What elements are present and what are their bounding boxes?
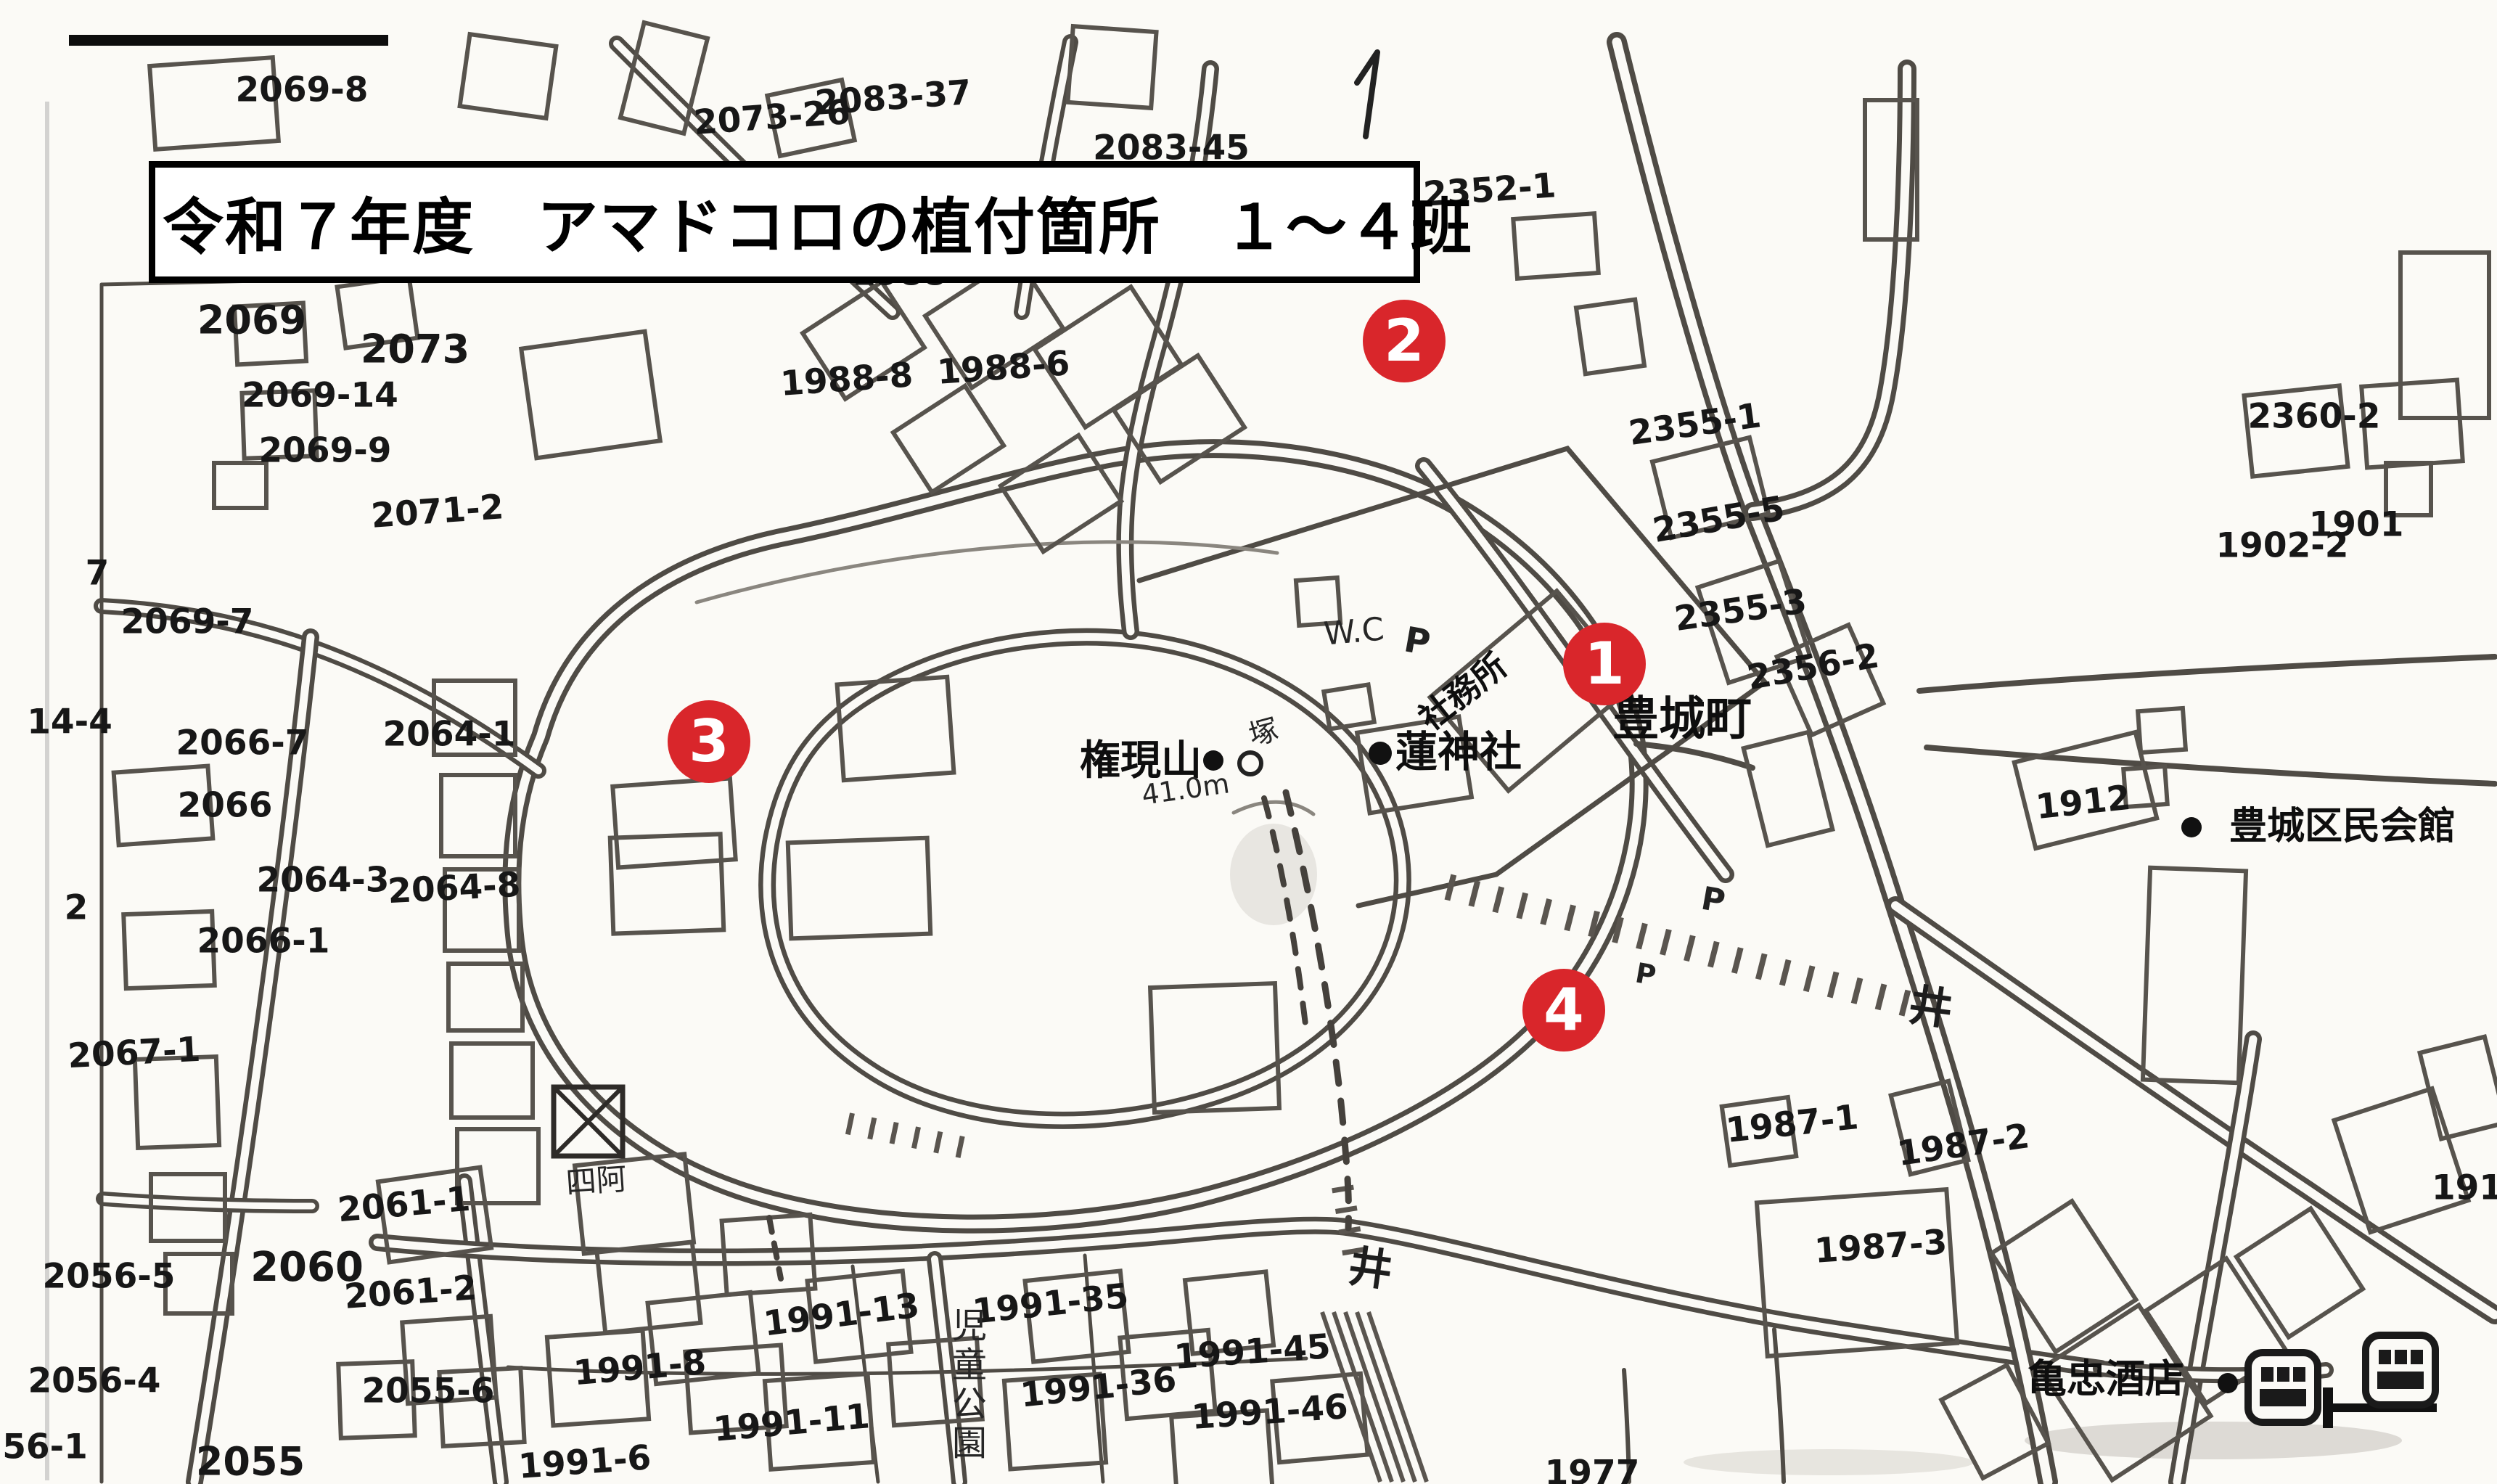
parcel-number-label: 2071-2	[370, 487, 505, 536]
bus-stop-icon	[2366, 1335, 2435, 1405]
map-label-vertical: 公	[952, 1384, 987, 1424]
parcel-number-label: 1991-11	[712, 1396, 872, 1450]
building-outline	[521, 332, 660, 458]
parking-p-icon: P	[1401, 619, 1433, 663]
parcel-number-label: 1991-45	[1173, 1327, 1332, 1377]
parcel-number-label: 1988-8	[779, 355, 914, 404]
bus-window	[2379, 1350, 2391, 1364]
building-outline	[1576, 300, 1644, 374]
building-outline	[610, 834, 724, 933]
parcel-number-label: 2055	[196, 1439, 305, 1484]
map-title: 令和７年度 アマドコロの植付箇所 １～４班	[155, 179, 1473, 266]
hasu-jinja-dot	[1369, 742, 1392, 765]
scan-smudge	[2025, 1422, 2402, 1459]
map-label-vertical: 童	[952, 1345, 987, 1385]
building-outline	[441, 775, 515, 856]
tsuka-circle	[1239, 753, 1261, 774]
parcel-number-label: 2069	[197, 298, 306, 343]
well-mark-icon: 井	[1345, 1241, 1395, 1298]
parcel-number-label: 14-4	[27, 702, 112, 742]
map-label-vertical: 児	[952, 1305, 987, 1346]
road-outline	[1752, 69, 1907, 512]
parcel-number-label: 1902-2	[2215, 526, 2348, 566]
place-name-label: W.C	[1322, 610, 1385, 652]
parcel-number-label: 2061-2	[343, 1268, 478, 1317]
parcel-number-label: 2067-1	[67, 1030, 202, 1077]
building-outline	[1067, 26, 1156, 108]
bus-body	[2260, 1389, 2306, 1406]
parcel-number-label: 2	[65, 888, 89, 928]
building-outline	[2400, 253, 2489, 418]
parcel-number-label: 1987-2	[1895, 1116, 2032, 1174]
parcel-number-label: 2066-7	[176, 723, 308, 763]
planting-marker-number-3: 3	[689, 708, 729, 775]
scanned-planting-map: 令和７年度 アマドコロの植付箇所 １～４班 2069-82073-262083-…	[0, 0, 2497, 1484]
parcel-number-label: 1991-35	[971, 1276, 1131, 1332]
parcel-number-label: 2056-4	[28, 1361, 160, 1401]
parcel-number-label: 2066	[178, 786, 273, 826]
parcel-number-label: 191	[2432, 1168, 2497, 1208]
road-fill	[464, 1181, 501, 1482]
bus-window	[2261, 1367, 2273, 1382]
place-name-label: 蓮神社	[1395, 727, 1522, 776]
boundary-line	[1357, 52, 1377, 136]
parcel-number-label: 2056-5	[42, 1257, 175, 1297]
parcel-number-label: 2355-1	[1626, 395, 1763, 454]
parcel-number-label: 2061-1	[336, 1179, 472, 1231]
parcel-number-label: 2064-1	[382, 715, 515, 755]
building-outline	[451, 1044, 533, 1118]
kuminkaikan-dot	[2181, 817, 2202, 837]
building-outline	[612, 778, 735, 867]
building-outline	[893, 386, 1004, 492]
boundary-line	[697, 542, 1277, 602]
well-mark-icon: 井	[1906, 980, 1956, 1036]
building-outline	[1513, 213, 1598, 279]
map-title-box: 令和７年度 アマドコロの植付箇所 １～４班	[149, 161, 1420, 283]
building-outline	[837, 677, 954, 780]
parcel-number-label: 2073	[361, 327, 470, 372]
parcel-number-label: 7	[86, 554, 110, 594]
steps-path	[848, 1123, 976, 1150]
parcel-number-label: 2069-14	[242, 376, 398, 416]
boundary-line	[1919, 657, 2495, 691]
bus-window	[2395, 1350, 2407, 1364]
scan-artifact-bar	[69, 35, 388, 46]
parcel-number-label: 2069-9	[258, 431, 391, 471]
scan-smudge	[1684, 1449, 1974, 1475]
parcel-number-label: 2069-7	[120, 602, 253, 642]
steps-path	[1448, 887, 1922, 1007]
building-outline	[1744, 732, 1833, 845]
parcel-number-label: 2066-1	[197, 922, 329, 962]
boundary-line	[1234, 802, 1313, 814]
parking-p-icon: P	[1633, 956, 1658, 991]
place-name-label: 豊城町	[1612, 693, 1752, 747]
bus-window	[2277, 1367, 2289, 1382]
kamechu-saketen-dot	[2218, 1373, 2238, 1393]
bus-window	[2293, 1367, 2305, 1382]
road-fill	[1895, 906, 2495, 1315]
parcel-number-label: 1988-6	[936, 343, 1071, 393]
bus-stop-icon	[2248, 1353, 2318, 1422]
slope-hachure	[1369, 1312, 1427, 1482]
parcel-number-label: 2360-2	[2247, 397, 2380, 437]
parcel-number-label: 2069-8	[235, 70, 368, 110]
planting-marker-number-1: 1	[1584, 630, 1625, 697]
building-outline	[788, 838, 930, 939]
map-label-vertical: 園	[952, 1423, 987, 1464]
parcel-number-label: 1991-13	[761, 1286, 922, 1345]
parcel-number-label: 1987-3	[1813, 1222, 1948, 1271]
place-name-label: 亀忠酒店	[2027, 1356, 2184, 1402]
parcel-number-label: 56-1	[2, 1427, 88, 1467]
bus-window	[2411, 1350, 2423, 1364]
parcel-number-label: 1912	[2034, 778, 2133, 827]
bus-body	[2377, 1372, 2424, 1389]
parcel-number-label: 2064-3	[256, 861, 389, 901]
parking-p-icon: P	[1699, 880, 1729, 921]
parcel-number-label: 2064-8	[387, 865, 522, 912]
building-outline	[2143, 868, 2246, 1083]
place-name-label: 塚	[1245, 713, 1282, 753]
building-outline	[460, 34, 557, 118]
parcel-number-label: 2055-6	[361, 1372, 494, 1411]
building-outline	[2138, 708, 2186, 753]
place-name-label: 豊城区民会館	[2229, 805, 2456, 848]
place-name-label: 四阿	[565, 1161, 628, 1201]
boundary-line	[1927, 747, 2495, 784]
gongenyama-dot	[1203, 750, 1223, 771]
road-fill	[1752, 69, 1907, 512]
planting-marker-number-2: 2	[1384, 307, 1424, 374]
building-outline	[2236, 1208, 2363, 1337]
planting-marker-number-4: 4	[1543, 976, 1584, 1044]
parcel-number-label: 1991-6	[517, 1438, 652, 1484]
parcel-number-label: 1977	[1545, 1454, 1640, 1484]
